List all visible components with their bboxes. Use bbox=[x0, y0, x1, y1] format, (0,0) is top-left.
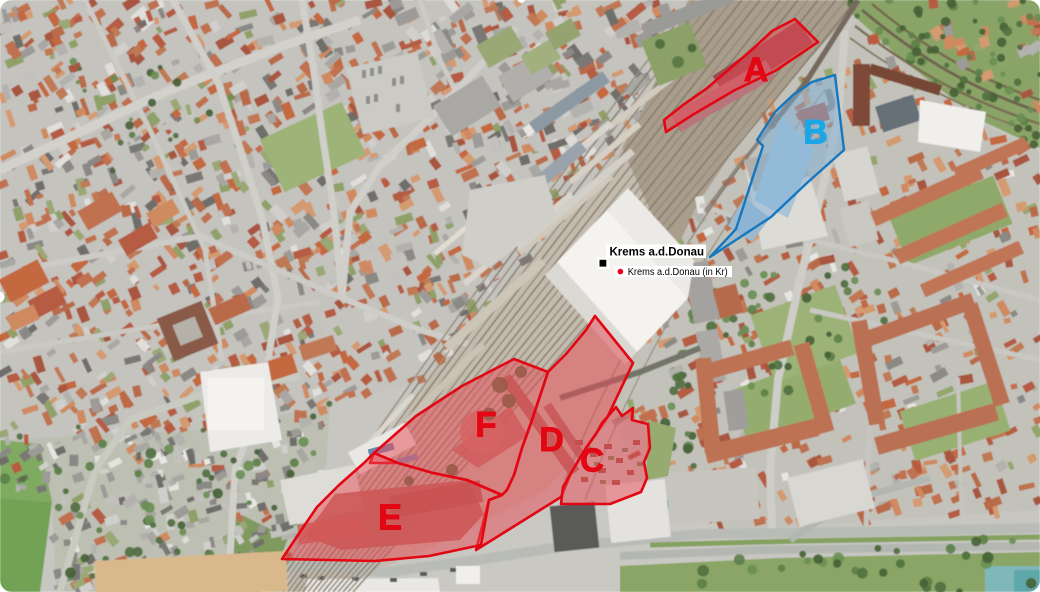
svg-text:D: D bbox=[539, 421, 564, 459]
svg-text:F: F bbox=[475, 406, 496, 445]
svg-text:C: C bbox=[580, 442, 604, 479]
svg-text:E: E bbox=[378, 497, 402, 538]
svg-text:A: A bbox=[744, 51, 769, 89]
svg-text:B: B bbox=[803, 114, 828, 152]
svg-text:Krems a.d.Donau (in Kr): Krems a.d.Donau (in Kr) bbox=[628, 267, 728, 278]
svg-text:Krems a.d.Donau: Krems a.d.Donau bbox=[610, 246, 705, 258]
